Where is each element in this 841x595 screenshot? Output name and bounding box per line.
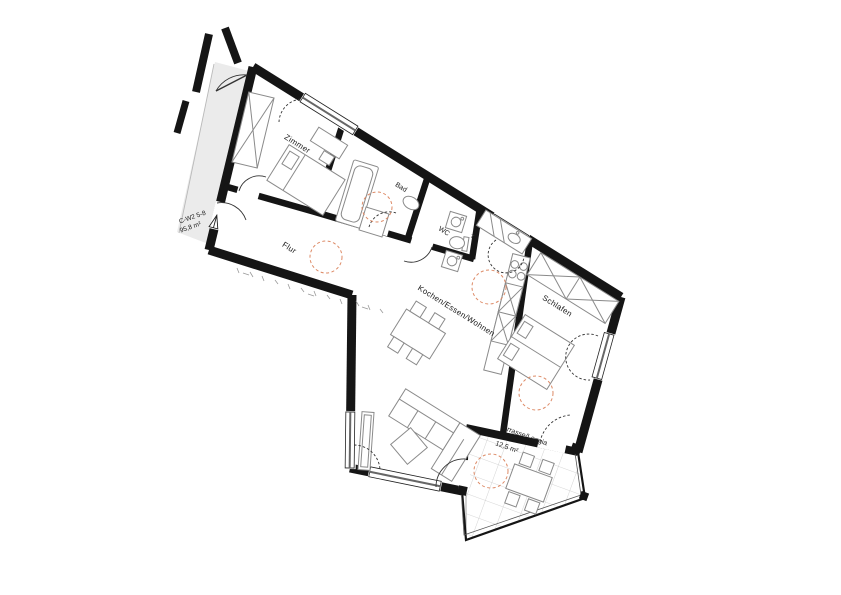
floor-plan-page: T bbox=[0, 0, 841, 595]
floor-plan-canvas: T bbox=[0, 0, 841, 595]
background bbox=[0, 0, 841, 595]
living-west-window bbox=[344, 411, 357, 469]
